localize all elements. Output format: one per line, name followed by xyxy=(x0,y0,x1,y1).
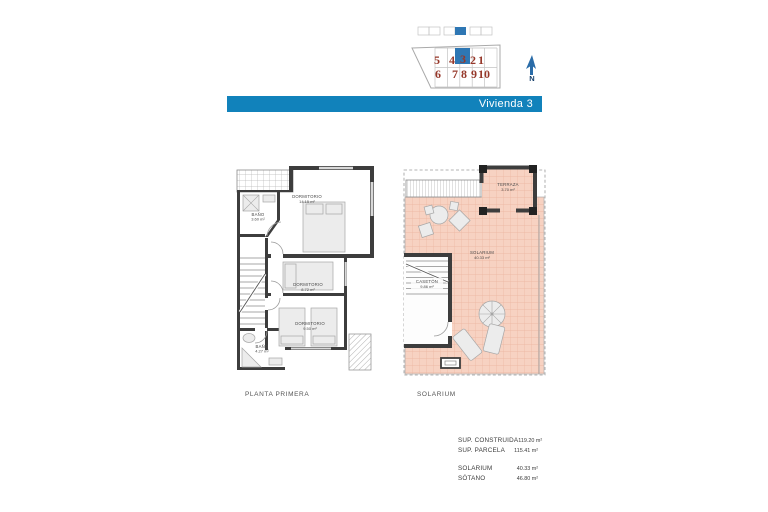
summary-row: SUP. PARCELA 115.41 m² xyxy=(458,447,538,457)
summary-value: 119.20 m² xyxy=(518,438,542,444)
room-area-bano-1: 3.60 m² xyxy=(251,217,265,222)
caseton xyxy=(404,253,452,348)
solarium-plan: TERRAZA 3.70 m² SOLARIUM 40.33 m² CASETÓ… xyxy=(398,162,548,378)
site-top-strip xyxy=(418,27,492,35)
terrace-tiles xyxy=(237,170,293,192)
summary-label: SUP. CONSTRUIDA xyxy=(458,437,518,444)
summary-row: SOLARIUM 40.33 m² xyxy=(458,465,538,475)
skylight xyxy=(441,358,460,368)
caption-planta-primera: PLANTA PRIMERA xyxy=(245,391,309,398)
room-area-dormitorio-1: 14.15 m² xyxy=(299,199,315,204)
site-locator-plan: 5 4 3 2 1 6 7 8 9 10 N xyxy=(405,15,545,95)
unit-number: 2 xyxy=(470,53,476,67)
north-label: N xyxy=(529,74,534,83)
room-area-dormitorio-3: 9.50 m² xyxy=(303,326,317,331)
unit-number: 6 xyxy=(435,67,441,81)
unit-number: 1 xyxy=(478,53,484,67)
banner-title: Vivienda 3 xyxy=(479,98,533,110)
summary-value: 46.80 m² xyxy=(517,476,538,482)
surface-summary: SUP. CONSTRUIDA 119.20 m² SUP. PARCELA 1… xyxy=(458,437,538,485)
terrace-hatched xyxy=(349,334,371,370)
planta-primera-plan: DORMITORIO 14.15 m² BAÑO 3.60 m² DORMITO… xyxy=(227,162,377,378)
caption-solarium: SOLARIUM xyxy=(417,391,456,398)
room-area-terraza: 3.70 m² xyxy=(501,187,515,192)
unit-number: 8 xyxy=(461,67,467,81)
site-strip-highlight xyxy=(455,27,466,35)
staircase xyxy=(240,258,265,324)
unit-number: 5 xyxy=(434,53,440,67)
room-area-dormitorio-2: 8.72 m² xyxy=(301,287,315,292)
north-arrow-icon: N xyxy=(526,55,536,83)
parasol-icon xyxy=(479,301,505,327)
summary-value: 115.41 m² xyxy=(514,448,538,454)
unit-number: 9 xyxy=(471,67,477,81)
summary-label: SUP. PARCELA xyxy=(458,447,505,454)
brochure-page: 5 4 3 2 1 6 7 8 9 10 N Vivienda 3 xyxy=(0,0,768,512)
summary-row: SUP. CONSTRUIDA 119.20 m² xyxy=(458,437,538,447)
summary-label: SÓTANO xyxy=(458,475,485,482)
room-area-caseton: 9.86 m² xyxy=(420,284,434,289)
unit-number: 10 xyxy=(478,67,490,81)
room-area-bano-2: 4.27 m² xyxy=(255,349,269,354)
summary-label: SOLARIUM xyxy=(458,465,493,472)
summary-row: SÓTANO 46.80 m² xyxy=(458,475,538,485)
unit-number: 7 xyxy=(452,67,458,81)
summary-value: 40.33 m² xyxy=(517,466,538,472)
room-area-solarium: 40.33 m² xyxy=(474,255,490,260)
unit-number: 4 xyxy=(449,53,455,67)
pergola-strip xyxy=(406,180,481,197)
banner: Vivienda 3 xyxy=(227,96,542,112)
unit-number-highlighted: 3 xyxy=(460,52,466,66)
